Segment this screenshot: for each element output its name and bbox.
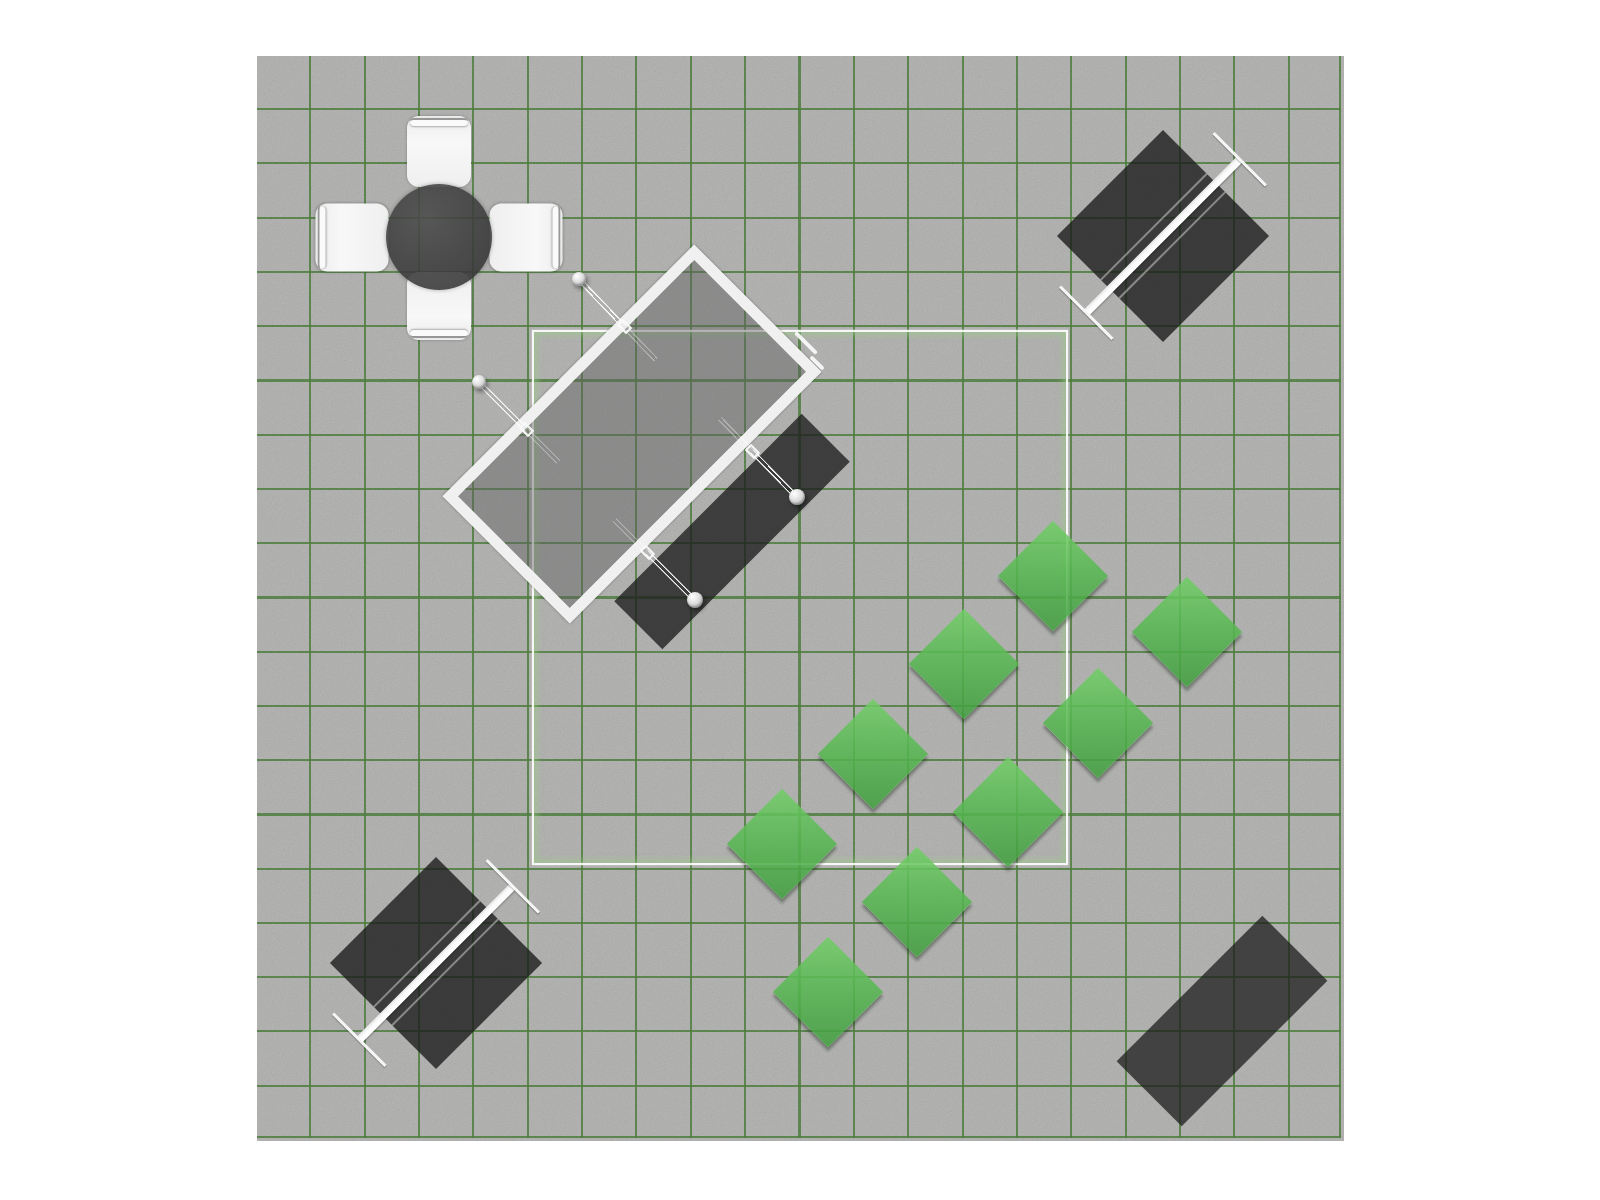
lawn-region-outline[interactable] — [532, 330, 1068, 865]
plan-canvas[interactable] — [257, 56, 1344, 1141]
garden-planner-page — [0, 0, 1600, 1200]
